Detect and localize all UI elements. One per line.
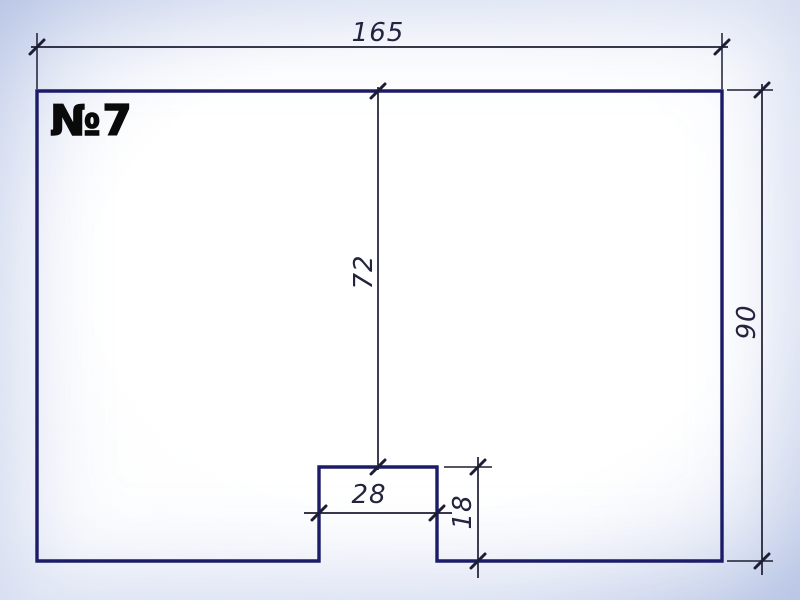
part-number-label: №7 — [50, 100, 134, 142]
dimension-center-vertical: 72 — [349, 84, 385, 474]
dimension-value-center-vertical: 72 — [349, 254, 379, 289]
dimension-notch-width: 28 — [304, 480, 452, 520]
technical-drawing-svg: 165 90 72 28 — [0, 0, 800, 600]
dimension-value-right-height: 90 — [732, 304, 762, 339]
dimension-value-notch-width: 28 — [351, 480, 386, 510]
dimension-value-notch-height: 18 — [448, 494, 478, 529]
drawing-sheet: 165 90 72 28 — [0, 0, 800, 600]
dimension-top-width: 165 — [30, 18, 729, 89]
dimension-right-height: 90 — [727, 83, 773, 575]
dimension-value-top-width: 165 — [352, 18, 405, 48]
